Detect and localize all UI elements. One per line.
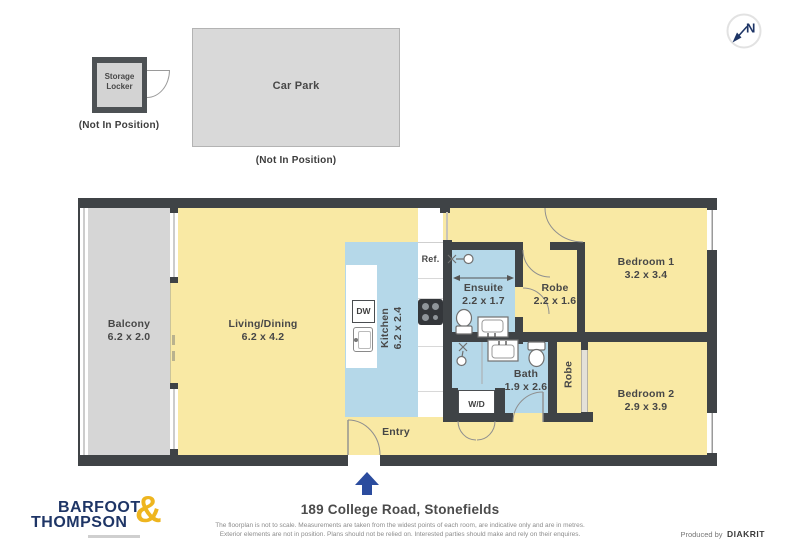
room-name: Kitchen: [379, 288, 392, 368]
room-name: Robe: [562, 345, 575, 405]
room-name: Ensuite: [452, 282, 515, 295]
room-dims: 3.2 x 3.4: [585, 269, 707, 282]
producer-name: DIAKRIT: [727, 529, 765, 539]
entry-arrow-icon: [355, 472, 379, 496]
room-dims: 1.9 x 2.6: [490, 381, 562, 394]
room-dims: 2.2 x 1.7: [452, 295, 515, 308]
car-park: Car Park: [192, 28, 400, 147]
address-title: 189 College Road, Stonefields: [200, 502, 600, 517]
room-name: Balcony: [88, 318, 170, 331]
entry-label: Entry: [366, 426, 426, 439]
floorplan-page: Storage Locker (Not In Position) Car Par…: [0, 0, 800, 548]
compass-n-letter: N: [746, 21, 755, 36]
room-name: Bedroom 1: [585, 256, 707, 269]
disclaimer-line1: The floorplan is not to scale. Measureme…: [140, 522, 660, 529]
floorplan: Ref. DW W/D: [78, 198, 717, 466]
storage-locker-label-2: Locker: [97, 82, 142, 92]
kitchen-label: Kitchen 6.2 x 2.4: [379, 288, 405, 368]
storage-locker-door-arc: [147, 70, 170, 98]
brand-microtext: [88, 535, 140, 538]
entry-arrow-head: [355, 472, 379, 485]
room-name: Bedroom 2: [585, 388, 707, 401]
bedroom2-label: Bedroom 2 2.9 x 3.9: [585, 388, 707, 414]
room-name: Bath: [490, 368, 562, 381]
car-park-label: Car Park: [193, 80, 399, 94]
room-dims: 6.2 x 2.4: [392, 288, 405, 368]
produced-by-text: Produced by: [680, 530, 722, 539]
room-dims: 6.2 x 2.0: [88, 331, 170, 344]
north-compass-icon: N: [726, 13, 762, 49]
ensuite-label: Ensuite 2.2 x 1.7: [452, 282, 515, 308]
storage-locker-interior: Storage Locker: [97, 63, 142, 107]
car-park-note: (Not In Position): [196, 155, 396, 166]
disclaimer-line2: Exterior elements are not in position. P…: [140, 531, 660, 538]
robe1-label: Robe 2.2 x 1.6: [525, 282, 585, 308]
entry-arrow-stem: [362, 485, 372, 495]
storage-locker: Storage Locker: [92, 57, 147, 113]
bedroom1-label: Bedroom 1 3.2 x 3.4: [585, 256, 707, 282]
brand-line2: THOMPSON: [31, 514, 127, 532]
room-name: Robe: [525, 282, 585, 295]
room-name: Living/Dining: [193, 318, 333, 331]
room-dims: 6.2 x 4.2: [193, 331, 333, 344]
room-name: Entry: [366, 426, 426, 439]
room-dims: 2.2 x 1.6: [525, 295, 585, 308]
bath-label: Bath 1.9 x 2.6: [490, 368, 562, 394]
balcony-label: Balcony 6.2 x 2.0: [88, 318, 170, 344]
living-dining-label: Living/Dining 6.2 x 4.2: [193, 318, 333, 344]
storage-locker-note: (Not In Position): [49, 120, 189, 131]
room-dims: 2.9 x 3.9: [585, 401, 707, 414]
storage-locker-label-1: Storage: [97, 72, 142, 82]
producer-credit: Produced by DIAKRIT: [640, 524, 790, 542]
robe2-label: Robe: [562, 345, 575, 405]
